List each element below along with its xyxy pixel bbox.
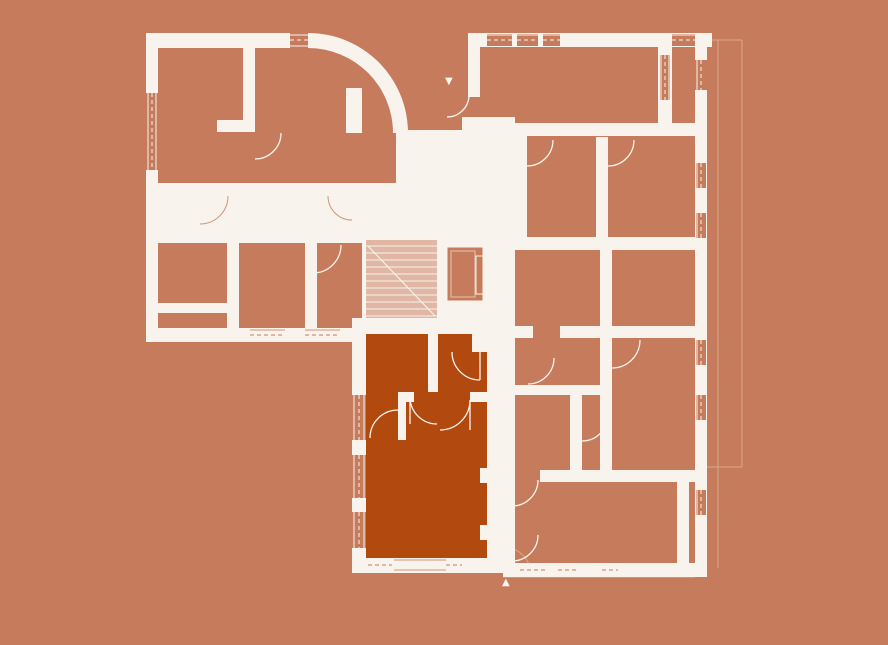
entrance-marker-top: ▼: [445, 76, 453, 87]
selected-apartment[interactable]: [352, 318, 500, 573]
window-symbol: [352, 395, 366, 548]
floor-plan-svg: ▼ ▲: [0, 0, 888, 645]
selected-apartment-fill[interactable]: [366, 334, 487, 560]
hallway: [487, 243, 515, 573]
entrance-marker-bottom: ▲: [502, 577, 510, 588]
corridor: [158, 183, 493, 243]
floor-plan-canvas: ▼ ▲: [0, 0, 888, 645]
elevator: [447, 247, 485, 301]
